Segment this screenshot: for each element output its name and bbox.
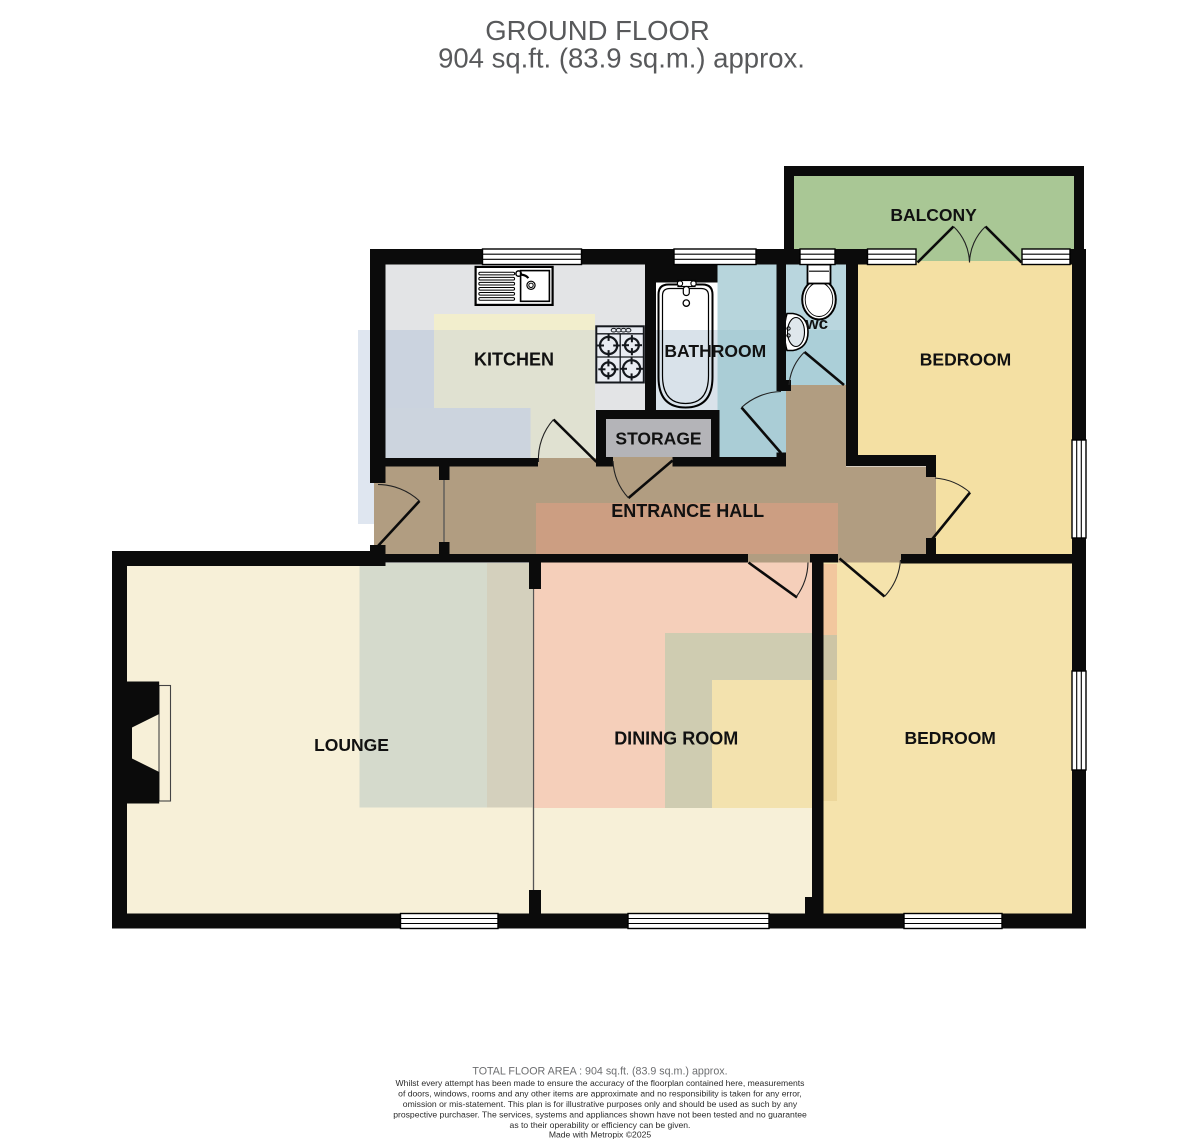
svg-text:Whilst every attempt has been: Whilst every attempt has been made to en… [396, 1078, 805, 1088]
svg-text:BEDROOM: BEDROOM [905, 728, 996, 748]
svg-text:ENTRANCE HALL: ENTRANCE HALL [611, 501, 764, 521]
svg-text:wc: wc [804, 314, 828, 333]
svg-text:of doors, windows, rooms and a: of doors, windows, rooms and any other i… [398, 1089, 802, 1099]
svg-text:TOTAL FLOOR AREA : 904 sq.ft.: TOTAL FLOOR AREA : 904 sq.ft. (83.9 sq.m… [472, 1066, 727, 1078]
svg-text:Made with Metropix ©2025: Made with Metropix ©2025 [549, 1130, 652, 1139]
svg-text:BATHROOM: BATHROOM [664, 341, 766, 361]
svg-text:prospective purchaser. The ser: prospective purchaser. The services, sys… [393, 1110, 807, 1120]
svg-text:as to their operability or eff: as to their operability or efficiency ca… [510, 1120, 691, 1130]
svg-text:KITCHEN: KITCHEN [474, 349, 554, 369]
svg-text:DINING ROOM: DINING ROOM [614, 728, 738, 748]
svg-text:904 sq.ft. (83.9 sq.m.) approx: 904 sq.ft. (83.9 sq.m.) approx. [438, 43, 805, 74]
svg-text:LOUNGE: LOUNGE [314, 735, 389, 755]
svg-text:GROUND FLOOR: GROUND FLOOR [485, 15, 710, 46]
svg-text:BEDROOM: BEDROOM [920, 350, 1011, 370]
svg-text:STORAGE: STORAGE [615, 428, 701, 448]
svg-text:omission or mis-statement. Thi: omission or mis-statement. This plan is … [403, 1099, 798, 1109]
svg-text:BALCONY: BALCONY [890, 205, 977, 225]
